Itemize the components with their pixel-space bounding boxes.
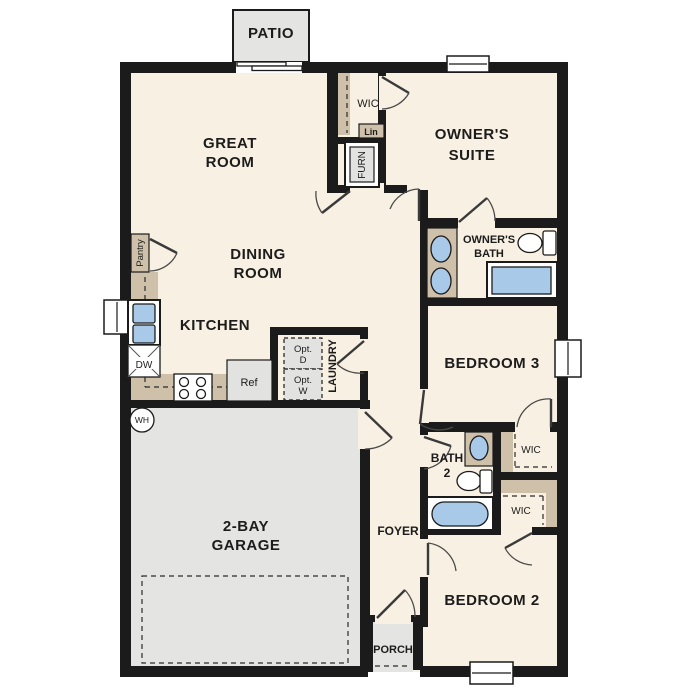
bedroom2-window [470,662,513,684]
wic-bed2-shelf-right [546,493,557,527]
furnace-label: FURN [357,151,368,179]
wic-bed2-label: WIC [511,506,530,517]
bath2-toilet [457,470,492,493]
patio-label: PATIO [248,25,294,42]
great-room-label-2: ROOM [206,154,255,171]
owners-suite-window [447,56,489,72]
opt-washer-label-1: Opt. [294,375,312,386]
foyer-label: FOYER [377,524,419,538]
floor-plan-canvas: PATIO GREAT ROOM DINING ROOM KITCHEN OWN… [0,0,687,687]
owners-suite-label-2: SUITE [449,147,496,164]
garage-label-1: 2-BAY [223,518,269,535]
wall-exterior-bottom-left [120,666,368,677]
owners-sink-1 [431,236,451,262]
wic-bed3-label: WIC [521,445,540,456]
owners-sink-2 [431,268,451,294]
laundry-label: LAUNDRY [327,339,339,393]
bedroom2-label: BEDROOM 2 [444,592,539,609]
wall-exterior-top [120,62,568,73]
bedroom3-label: BEDROOM 3 [444,355,539,372]
wic-owner-label: WIC [357,98,378,110]
porch-label: PORCH [373,644,413,656]
wall-greatroom-right [327,62,338,187]
wic-shelf [338,73,350,135]
bedroom3-window [555,340,581,377]
great-room-label-1: GREAT [203,135,257,152]
patio-slider-panel-2 [252,66,302,71]
water-heater-label: WH [135,415,149,425]
bath2-label-1: BATH [431,451,463,465]
dishwasher-label: DW [136,360,153,371]
dining-label-1: DINING [230,246,286,263]
kitchen-label: KITCHEN [180,317,250,334]
linen-label: Lin [364,127,378,137]
bath2-sink [470,436,488,460]
refrigerator-label: Ref [240,377,258,389]
opt-dryer-label-2: D [300,355,307,366]
owners-shower [487,262,557,298]
wall-wic-divider [493,472,557,480]
owners-suite-label-1: OWNER'S [435,126,510,143]
pantry-label: Pantry [135,239,146,267]
opt-dryer-label-1: Opt. [294,344,312,355]
owners-bath-label-2: BATH [474,248,504,260]
kitchen-sink [128,300,160,345]
stove [174,374,212,401]
opt-washer-label-2: W [299,386,308,397]
bath2-tub [427,497,493,530]
wall-porch-left [365,622,373,672]
owners-bath-label-1: OWNER'S [463,234,515,246]
kitchen-window [104,300,131,334]
owners-toilet [518,231,556,255]
wic-bed3-shelf [501,432,513,472]
floor-plan-drawing: PATIO GREAT ROOM DINING ROOM KITCHEN OWN… [0,0,687,687]
bath2-label-2: 2 [444,466,451,480]
wall-bath-bed3 [420,298,557,306]
wall-porch-right [413,615,423,670]
garage-label-2: GARAGE [212,537,281,554]
wall-laundry-top [270,327,368,335]
garage-floor [131,404,364,666]
wic-bed2-shelf-top [501,480,557,493]
dining-label-2: ROOM [234,265,283,282]
